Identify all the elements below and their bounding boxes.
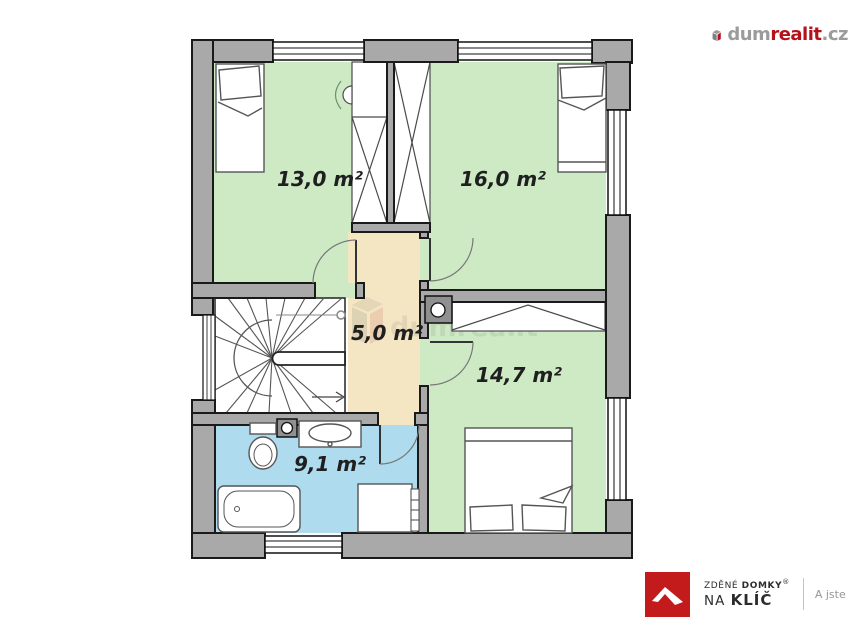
flue-pipe-icon [282,423,293,434]
window-bottom-bathroom [265,536,342,553]
dumrealit-cube-icon [712,13,721,57]
dumrealit-logo: dumrealit.cz [712,12,848,58]
room-label-bedroom-upper-left: 13,0 m² [277,167,363,191]
staircase [215,298,345,413]
wall [356,283,364,298]
room-label-bathroom: 9,1 m² [294,452,366,476]
logo-text-zdene: ZDĚNÉ [704,581,742,591]
logo-text-dum: dum [727,24,770,45]
window-top-right [458,42,592,60]
wall [364,40,458,62]
radiator-icon [411,489,419,531]
wall [606,62,630,110]
door-gap [420,238,428,281]
wall [387,62,394,232]
single-bed-icon [216,64,264,172]
floor-plan-drawing: dumrealit [0,0,848,636]
zdene-domky-logo: ZDĚNÉ DOMKY® NA KLÍČ A jste dom [645,569,848,619]
wall [352,223,430,232]
wall [192,283,315,298]
flue-pipe-icon [431,303,445,317]
registered-trademark-icon: ® [782,578,790,586]
room-label-bedroom-lower-right: 14,7 m² [476,363,562,387]
closet-upper-right-room [394,62,430,223]
door-gap [378,413,415,425]
window-top-left [273,42,364,60]
stair-handrail [273,352,346,365]
wall [420,232,428,238]
roof-logo-icon [645,572,690,617]
logo-divider [803,578,804,610]
wall [192,40,213,315]
logo-tagline: A jste dom [815,588,848,601]
floor-plan-image: dumrealit [0,0,848,636]
window-right-upper [608,110,626,215]
window-right-lower [608,398,626,500]
shower-icon [358,484,412,532]
wall [342,533,632,558]
wall [415,413,428,425]
logo-text-na: NA [704,593,731,609]
zdene-domky-text: ZDĚNÉ DOMKY® NA KLÍČ [704,579,790,609]
double-bed-icon [465,428,572,533]
wall [592,40,632,63]
bathtub-icon [218,486,300,532]
wall [606,215,630,398]
stair-newel-post [337,311,345,319]
sink-icon [299,421,361,447]
logo-text-domky: DOMKY [742,581,783,591]
window-left-stair [203,315,215,400]
logo-text-cz: .cz [822,24,848,45]
wall [192,533,265,558]
logo-text-klic: KLÍČ [731,591,773,609]
single-bed-icon [558,64,606,172]
door-gap [315,283,356,298]
logo-text-realit: realit [770,24,821,45]
wardrobe-lower-right-room [452,302,605,331]
wall [420,386,428,413]
room-label-hallway: 5,0 m² [351,321,423,345]
room-label-bedroom-upper-right: 16,0 m² [460,167,546,191]
door-gap [420,338,428,386]
toilet-icon [249,423,277,469]
